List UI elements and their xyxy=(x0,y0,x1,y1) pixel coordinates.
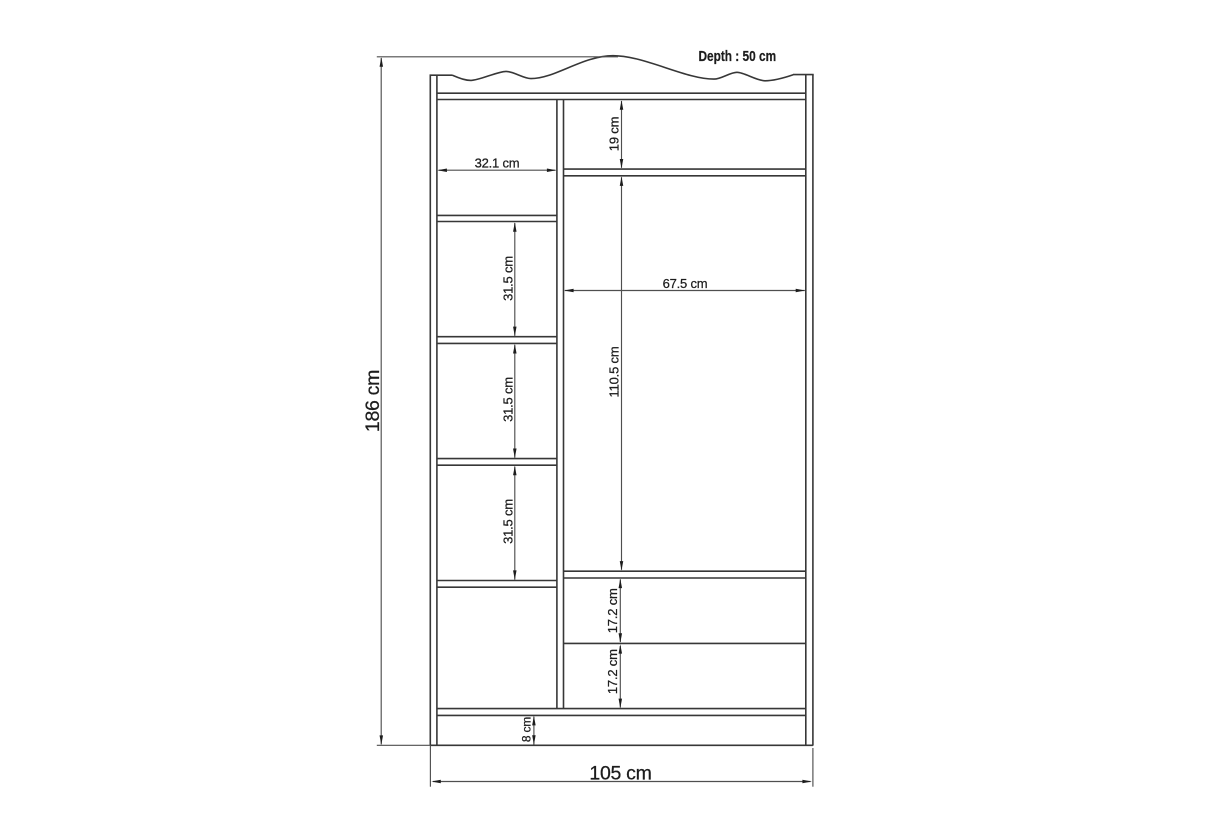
svg-text:17.2 cm: 17.2 cm xyxy=(605,588,620,633)
svg-text:8 cm: 8 cm xyxy=(520,717,534,742)
svg-text:31.5 cm: 31.5 cm xyxy=(501,377,516,422)
svg-text:31.5 cm: 31.5 cm xyxy=(501,499,516,544)
svg-text:67.5 cm: 67.5 cm xyxy=(663,276,708,291)
svg-text:110.5 cm: 110.5 cm xyxy=(607,347,622,398)
svg-text:17.2 cm: 17.2 cm xyxy=(605,649,620,694)
svg-text:19 cm: 19 cm xyxy=(607,117,622,151)
svg-text:Depth : 50 cm: Depth : 50 cm xyxy=(699,47,777,64)
svg-text:32.1 cm: 32.1 cm xyxy=(475,156,520,171)
svg-text:186 cm: 186 cm xyxy=(362,370,384,432)
svg-text:105 cm: 105 cm xyxy=(589,762,651,784)
svg-text:31.5 cm: 31.5 cm xyxy=(501,256,516,301)
